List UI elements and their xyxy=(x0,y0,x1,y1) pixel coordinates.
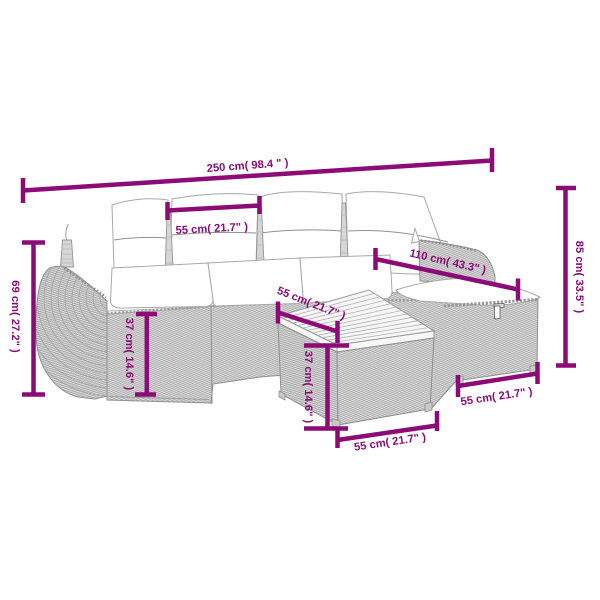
svg-text:37 cm( 14.6" ): 37 cm( 14.6" ) xyxy=(302,351,314,424)
svg-text:85 cm( 33.5" ): 85 cm( 33.5" ) xyxy=(573,241,585,314)
svg-text:69 cm( 27.2" ): 69 cm( 27.2" ) xyxy=(9,280,21,353)
svg-text:37 cm( 14.6" ): 37 cm( 14.6" ) xyxy=(123,318,135,391)
